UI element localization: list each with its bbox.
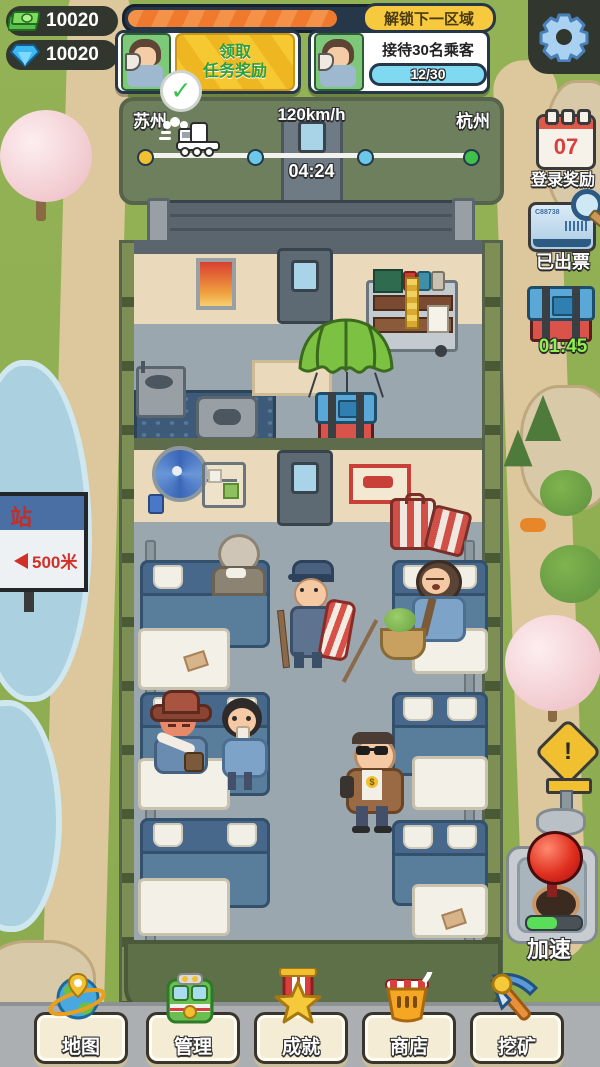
cash-icon (8, 8, 42, 34)
settings-button[interactable] (528, 0, 600, 74)
cart-bottle-grey (431, 271, 445, 291)
crate-timer: 01:45 (516, 336, 600, 358)
mining-pickaxe-icon (488, 970, 542, 1026)
bush-tree-1 (540, 470, 592, 516)
money-counter[interactable]: 10020 (6, 6, 118, 36)
sink-basin (145, 375, 173, 389)
ticket-label: 已出票 (516, 248, 600, 274)
cart-menu-paper (427, 305, 449, 333)
squat-toilet[interactable] (196, 396, 258, 440)
train-icon (159, 117, 225, 157)
billboard-station-text: 站 (10, 500, 32, 532)
warning-mark: ! (564, 738, 572, 766)
claim-line1: 领取 (219, 43, 251, 62)
parachute-icon (296, 316, 396, 380)
nav-label-map: 地图 (37, 1032, 125, 1059)
route-timer: 04:24 (123, 161, 500, 182)
table-left-3 (138, 878, 230, 936)
crate-ribbon-2 (552, 296, 574, 316)
conductor[interactable] (278, 560, 348, 670)
compartment-a-door[interactable] (277, 248, 333, 324)
held-item (340, 776, 354, 798)
reward-crate-button[interactable] (530, 286, 592, 342)
map-globe-icon (46, 972, 108, 1026)
task-complete-check: ✓ (160, 70, 202, 112)
picture-art (363, 476, 393, 488)
task-card-claim[interactable]: 领取 任务奖励 (115, 30, 301, 94)
station-billboard: 站 500米 (0, 492, 88, 592)
cart-wheel-2 (435, 345, 447, 357)
shelf-box (223, 483, 239, 499)
billboard-distance: 500米 (32, 548, 77, 573)
route-to: 杭州 (456, 107, 490, 132)
login-reward-button[interactable]: 07 (536, 114, 596, 170)
serve-task-progress: 12/30 (410, 66, 445, 82)
crate-ribbon (338, 400, 358, 418)
passenger-girl[interactable] (214, 698, 270, 794)
unlock-area-button[interactable]: 解锁下一区域 (362, 3, 496, 33)
cart-green-box (373, 269, 403, 293)
pine-tree-2 (504, 430, 533, 467)
wire-shelf (202, 462, 246, 508)
fan-hub (172, 466, 182, 476)
compartment-b-door[interactable] (277, 450, 333, 526)
wall-poster-red (196, 258, 236, 310)
unlock-area-label: 解锁下一区域 (384, 8, 474, 29)
calendar-day: 07 (539, 129, 593, 165)
shelf-cup (208, 469, 222, 483)
gear-icon (539, 12, 589, 62)
airdrop-crate (318, 392, 374, 442)
boost-red-ball (527, 831, 583, 885)
table-right-2 (412, 756, 488, 810)
task-card-serve[interactable]: 接待30名乘客 12/30 (308, 30, 490, 94)
nav-label-mining: 挖矿 (473, 1032, 561, 1059)
ticket-barcode (565, 221, 587, 231)
plant-basket (372, 606, 428, 672)
manage-train-icon (162, 972, 218, 1024)
passenger-bald-man[interactable] (212, 534, 260, 592)
claim-line2: 任务奖励 (203, 62, 267, 81)
boost-label: 加速 (506, 932, 592, 964)
blossom-tree-left (0, 110, 92, 202)
boost-button[interactable] (506, 846, 598, 944)
gem-counter[interactable]: 10020 (6, 40, 118, 70)
nav-label-manage: 管理 (149, 1032, 237, 1059)
diamond-icon (10, 43, 40, 67)
conductor-crutch (277, 610, 290, 668)
passenger-sunglasses-man[interactable]: $ (340, 736, 404, 832)
cart-bottle-teal (417, 271, 431, 291)
fan-switch (148, 494, 164, 514)
check-icon: ✓ (171, 76, 192, 106)
bush-tree-2 (540, 545, 600, 603)
toilet-sink[interactable] (136, 366, 186, 418)
sink-faucet (141, 361, 145, 373)
money-value: 10020 (46, 10, 99, 32)
game-screen: 苏州 120km/h 杭州 04:24 (0, 0, 600, 1067)
ticket-button[interactable]: C88738 (528, 202, 596, 252)
passenger-hat-man[interactable] (146, 694, 210, 768)
airdrop[interactable] (296, 316, 396, 444)
nav-label-shop: 商店 (365, 1032, 453, 1059)
orange-flowers (520, 518, 546, 532)
gem-value: 10020 (46, 44, 99, 66)
shop-basket-icon (378, 972, 436, 1024)
table-left-1 (138, 628, 230, 690)
attendant-avatar-2 (314, 33, 364, 91)
table-right-3 (412, 884, 488, 938)
blossom-tree-right (505, 615, 600, 711)
boost-charge-bar (525, 915, 583, 931)
login-reward-label: 登录奖励 (516, 166, 600, 190)
cart-banana-garland (405, 277, 419, 329)
ticket-code: C88738 (535, 209, 560, 216)
serve-task-title: 接待30名乘客 (382, 39, 474, 60)
achievement-medal-icon (272, 968, 324, 1024)
route-panel: 苏州 120km/h 杭州 04:24 (119, 97, 504, 205)
squat-toilet-hole (213, 409, 241, 425)
left-arrow-icon (14, 553, 28, 569)
serve-task-progress-bar: 12/30 (369, 63, 487, 86)
nav-label-achievements: 成就 (257, 1032, 345, 1059)
